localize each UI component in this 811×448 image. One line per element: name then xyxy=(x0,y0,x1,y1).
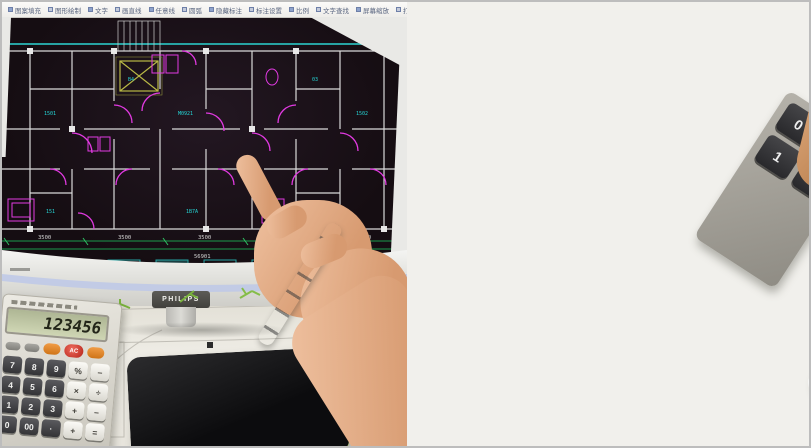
toolbar-item: 任意线 xyxy=(149,5,176,15)
svg-text:3500: 3500 xyxy=(38,235,51,241)
calculator-key: 2 xyxy=(21,397,41,416)
tool-icon xyxy=(209,7,214,12)
tool-icon xyxy=(396,7,401,12)
plant-sprig xyxy=(178,290,202,304)
calculator-key: 0 xyxy=(2,415,17,434)
calculator-key: % xyxy=(68,361,88,380)
calculator-key: 1 xyxy=(2,395,19,414)
tool-icon xyxy=(48,7,53,12)
svg-text:1B7A: 1B7A xyxy=(186,209,198,215)
toolbar-item: 文字查找 xyxy=(316,5,349,15)
calculator-keypad: 7 8 9 % − 4 5 6 × ÷ 1 2 3 + − 0 00 · + = xyxy=(2,355,112,441)
toolbar-item: 打印 xyxy=(396,5,407,15)
calculator-key: ÷ xyxy=(88,383,108,402)
calculator-key: 00 xyxy=(19,417,39,436)
svg-text:1502: 1502 xyxy=(356,111,368,117)
calculator-key: 9 xyxy=(46,359,66,378)
calculator-key xyxy=(43,343,61,355)
calculator-ac-key: AC xyxy=(64,344,84,359)
calculator-display-value: 123456 xyxy=(42,314,104,338)
calculator-key: 5 xyxy=(22,377,42,396)
calculator-display: 123456 xyxy=(5,306,110,342)
calculator-key: 3 xyxy=(43,399,63,418)
toolbar-item: 圆弧 xyxy=(182,5,202,15)
calculator-key xyxy=(24,343,40,352)
calculator: 123456 AC 7 8 9 % − 4 5 6 × ÷ 1 xyxy=(2,293,123,448)
calculator-key: · xyxy=(41,419,61,438)
calculator-key: + xyxy=(64,401,84,420)
bezel-model-label xyxy=(10,268,30,271)
toolbar-item: 屏幕缩放 xyxy=(356,5,389,15)
tool-icon xyxy=(249,7,254,12)
tool-icon xyxy=(356,7,361,12)
toolbar-item: 隐藏标注 xyxy=(209,5,242,15)
calculator-key: − xyxy=(86,403,106,422)
calculator-corner: 0 0 1 4 xyxy=(694,90,811,289)
toolbar-item: 图形绘制 xyxy=(48,5,81,15)
svg-text:3500: 3500 xyxy=(198,235,211,241)
tool-icon xyxy=(88,7,93,12)
cad-fixtures xyxy=(8,55,284,223)
svg-text:3500: 3500 xyxy=(118,235,131,241)
tool-icon xyxy=(149,7,154,12)
cad-walls xyxy=(2,51,407,229)
toolbar-item: 标注设置 xyxy=(249,5,282,15)
toolbar-item: 图案填充 xyxy=(8,5,41,15)
toolbar-item: 文字 xyxy=(88,5,108,15)
photo-collage: 1501 B4 M0921 03 151 1B7A M09 1502 3500 … xyxy=(0,0,811,448)
calculator-key: 7 xyxy=(2,355,22,374)
white-marker-pen xyxy=(804,293,811,401)
svg-text:M0921: M0921 xyxy=(178,111,193,117)
svg-text:1501: 1501 xyxy=(44,111,56,117)
tool-icon xyxy=(289,7,294,12)
calculator-key: × xyxy=(66,381,86,400)
calculator-key: − xyxy=(90,363,110,382)
svg-text:B4: B4 xyxy=(128,77,134,83)
tool-icon xyxy=(115,7,120,12)
tool-icon xyxy=(182,7,187,12)
calculator-key: 8 xyxy=(24,357,44,376)
calculator-key: 4 xyxy=(2,375,21,394)
svg-text:151: 151 xyxy=(46,209,55,215)
svg-text:03: 03 xyxy=(312,77,318,83)
left-panel-cad-workspace: 1501 B4 M0921 03 151 1B7A M09 1502 3500 … xyxy=(2,2,407,448)
toolbar-item: 比例 xyxy=(289,5,309,15)
calculator-key: = xyxy=(85,423,105,442)
calculator-key xyxy=(5,341,21,350)
cad-toolbar: 图案填充 图形绘制 文字 画直线 任意线 圆弧 隐藏标注 标注设置 比例 文字查… xyxy=(2,2,407,18)
calculator-key: + xyxy=(63,421,83,440)
calculator-key xyxy=(87,347,105,359)
cad-stairs xyxy=(118,21,160,51)
cad-elevator-shaft xyxy=(116,57,162,95)
toolbar-item: 画直线 xyxy=(115,5,142,15)
right-panel-drafting: 3400 9000 30700 ±0.000 2000 21000 5200 7… xyxy=(407,2,811,448)
tool-icon xyxy=(316,7,321,12)
tool-icon xyxy=(8,7,13,12)
calculator-key: 6 xyxy=(44,379,64,398)
